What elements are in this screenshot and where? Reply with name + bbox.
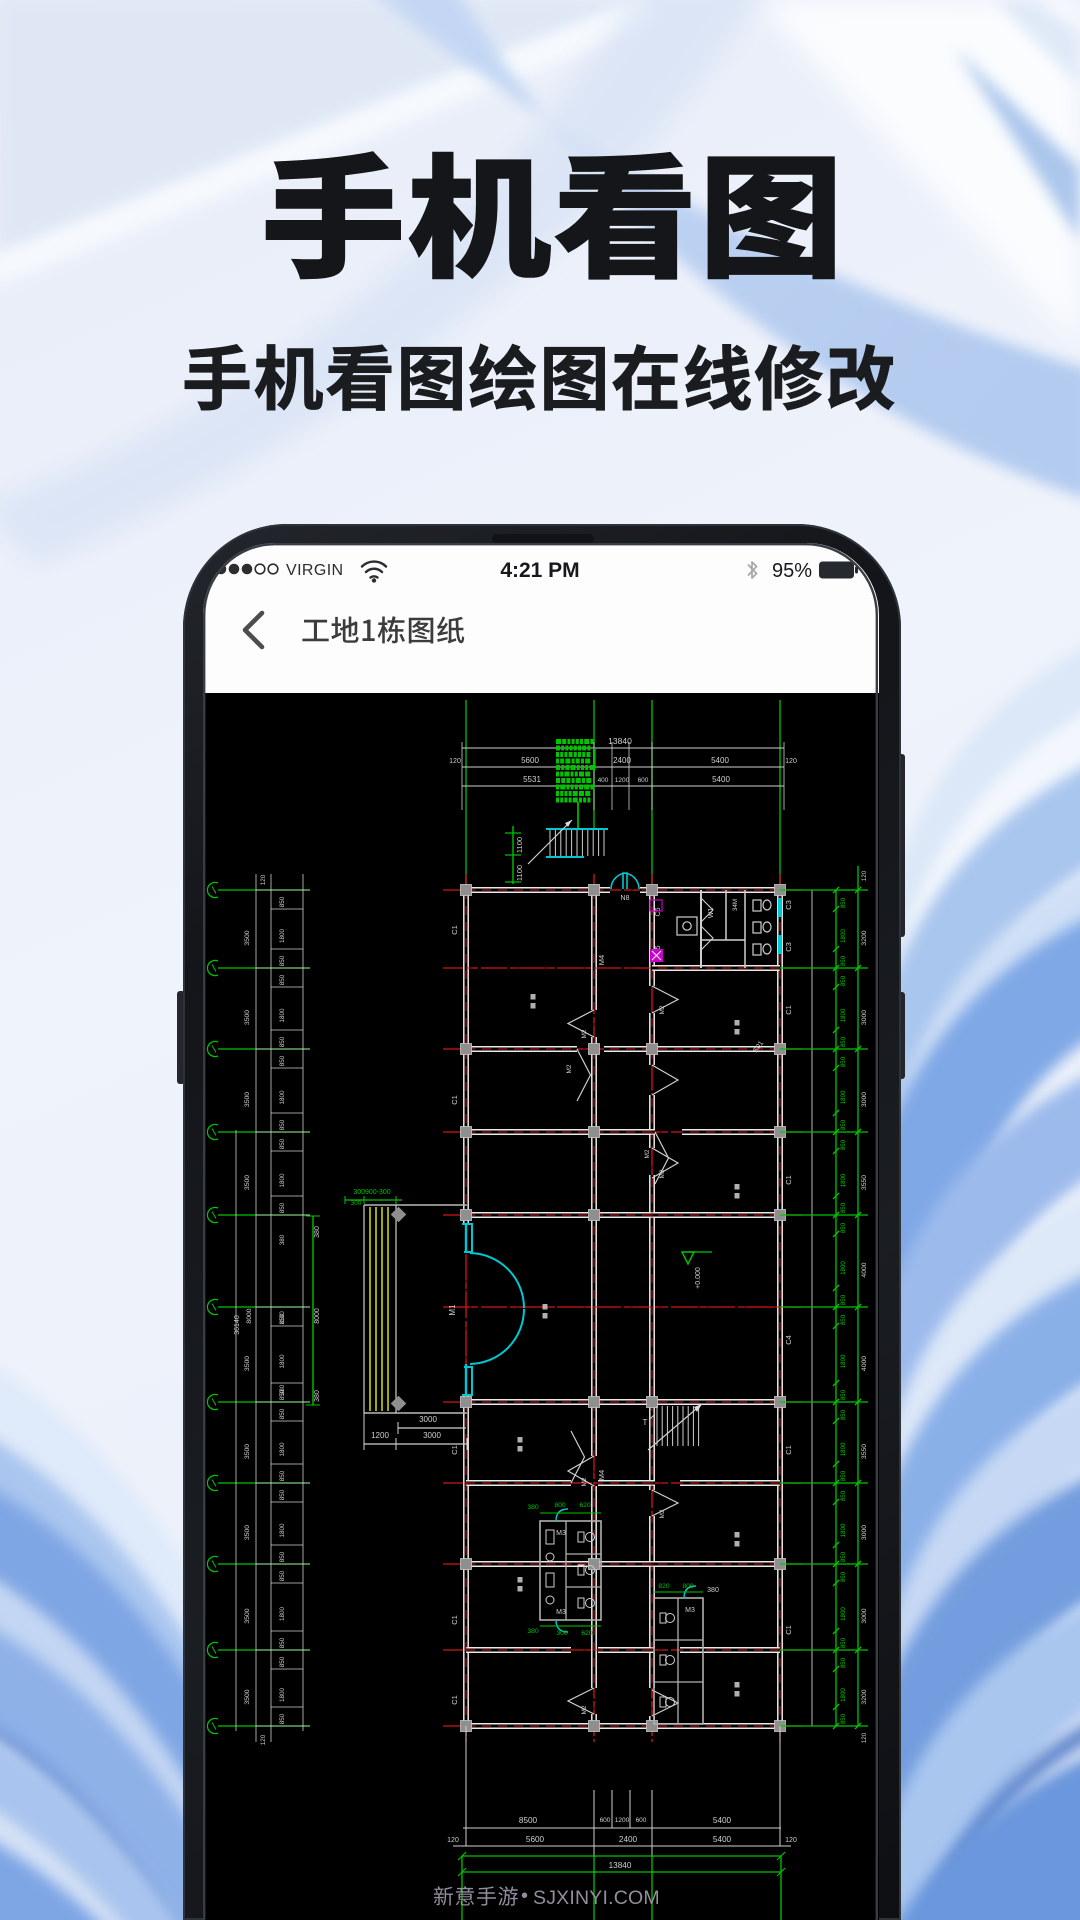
svg-text:M3: M3 xyxy=(685,1607,695,1614)
svg-text:3500: 3500 xyxy=(244,1444,251,1459)
svg-text:C1: C1 xyxy=(450,1695,459,1705)
svg-text:M2: M2 xyxy=(659,1005,666,1014)
svg-text:1800: 1800 xyxy=(279,1688,286,1703)
svg-text:34M: 34M xyxy=(732,899,739,911)
svg-text:850: 850 xyxy=(840,1294,847,1305)
svg-text:T: T xyxy=(643,1418,648,1427)
svg-text:M2: M2 xyxy=(581,1705,588,1714)
svg-text:850: 850 xyxy=(840,1571,847,1582)
svg-text:3500: 3500 xyxy=(244,1525,251,1540)
svg-text:380: 380 xyxy=(279,1384,286,1395)
svg-text:2400: 2400 xyxy=(613,756,631,765)
svg-text:2400: 2400 xyxy=(619,1835,638,1844)
svg-text:+0.000: +0.000 xyxy=(695,1267,702,1289)
svg-text:C3: C3 xyxy=(784,900,793,910)
svg-text:380: 380 xyxy=(279,1234,286,1245)
svg-text:850: 850 xyxy=(840,1222,847,1233)
svg-text:SJXINYI.COM: SJXINYI.COM xyxy=(533,1887,660,1909)
svg-text:1800: 1800 xyxy=(840,1354,847,1368)
svg-text:850: 850 xyxy=(279,1036,286,1047)
svg-text:380: 380 xyxy=(527,1628,539,1635)
svg-text:5531: 5531 xyxy=(523,775,541,784)
svg-text:850: 850 xyxy=(279,1656,286,1667)
svg-text:850: 850 xyxy=(279,1713,286,1724)
svg-text:850: 850 xyxy=(840,1713,847,1724)
svg-text:1800: 1800 xyxy=(279,1523,286,1538)
svg-text:N8: N8 xyxy=(621,895,630,902)
svg-text:M2: M2 xyxy=(581,1477,588,1486)
svg-text:1100: 1100 xyxy=(515,865,524,881)
svg-text:3500: 3500 xyxy=(244,1608,251,1623)
svg-text:800: 800 xyxy=(682,1583,694,1590)
svg-text:1800: 1800 xyxy=(840,929,847,943)
svg-text:C4: C4 xyxy=(784,1335,793,1345)
svg-text:850: 850 xyxy=(840,1551,847,1562)
svg-text:5400: 5400 xyxy=(713,1816,732,1825)
svg-text:C1: C1 xyxy=(450,1615,459,1625)
svg-text:850: 850 xyxy=(279,896,286,907)
svg-text:8500: 8500 xyxy=(519,1816,538,1825)
svg-text:850: 850 xyxy=(840,1139,847,1150)
svg-text:3000: 3000 xyxy=(419,1415,437,1424)
svg-text:M2: M2 xyxy=(566,1064,573,1073)
svg-text:850: 850 xyxy=(279,1551,286,1562)
svg-text:1800: 1800 xyxy=(840,1173,847,1187)
svg-text:3500: 3500 xyxy=(244,1175,251,1190)
svg-text:820: 820 xyxy=(658,1583,670,1590)
svg-text:3000: 3000 xyxy=(861,1608,868,1623)
svg-text:3550: 3550 xyxy=(861,1175,868,1190)
svg-text:850: 850 xyxy=(840,1490,847,1501)
svg-text:36140: 36140 xyxy=(234,1315,241,1335)
svg-text:3200: 3200 xyxy=(861,930,868,945)
svg-text:1100: 1100 xyxy=(515,837,524,853)
svg-text:850: 850 xyxy=(279,1408,286,1419)
svg-text:1800: 1800 xyxy=(840,1607,847,1621)
svg-text:1800: 1800 xyxy=(279,1354,286,1369)
svg-text:1800: 1800 xyxy=(279,929,286,944)
svg-text:850: 850 xyxy=(279,1489,286,1500)
svg-text:380: 380 xyxy=(527,1504,539,1511)
svg-text:850: 850 xyxy=(279,1570,286,1581)
svg-text:3000: 3000 xyxy=(861,1525,868,1540)
svg-text:120: 120 xyxy=(260,1734,267,1745)
svg-text:120: 120 xyxy=(785,758,797,765)
svg-text:850: 850 xyxy=(840,1657,847,1668)
svg-text:850: 850 xyxy=(840,1202,847,1213)
svg-text:850: 850 xyxy=(279,1119,286,1130)
svg-text:3500: 3500 xyxy=(244,1356,251,1371)
svg-text:620: 620 xyxy=(581,1630,593,1637)
svg-text:M4: M4 xyxy=(597,955,606,965)
svg-text:1800: 1800 xyxy=(279,1173,286,1188)
svg-text:1800: 1800 xyxy=(840,1688,847,1702)
svg-text:850: 850 xyxy=(840,1409,847,1420)
svg-text:600: 600 xyxy=(600,1817,611,1824)
svg-text:C1: C1 xyxy=(450,925,459,935)
svg-text:C1: C1 xyxy=(450,1445,459,1455)
svg-text:600: 600 xyxy=(636,1817,647,1824)
svg-text:120: 120 xyxy=(861,870,868,881)
svg-text:M2: M2 xyxy=(659,1509,666,1518)
svg-text:C1: C1 xyxy=(784,1625,793,1635)
svg-text:850: 850 xyxy=(840,1470,847,1481)
svg-text:•: • xyxy=(521,1885,528,1907)
svg-text:1800: 1800 xyxy=(840,1090,847,1104)
svg-text:620: 620 xyxy=(579,1502,591,1509)
svg-text:300: 300 xyxy=(556,1630,568,1637)
svg-text:4000: 4000 xyxy=(861,1356,868,1371)
svg-text:850: 850 xyxy=(840,975,847,986)
svg-text:1200: 1200 xyxy=(615,777,630,784)
svg-text:5600: 5600 xyxy=(521,756,539,765)
svg-text:120: 120 xyxy=(449,758,461,765)
svg-text:3500: 3500 xyxy=(244,1689,251,1704)
svg-text:C5: C5 xyxy=(655,907,662,916)
svg-text:1800: 1800 xyxy=(279,1008,286,1023)
svg-text:850: 850 xyxy=(840,1036,847,1047)
svg-text:850: 850 xyxy=(279,955,286,966)
svg-text:1800: 1800 xyxy=(279,1442,286,1457)
svg-text:C1: C1 xyxy=(784,1445,793,1455)
svg-text:850: 850 xyxy=(279,1055,286,1066)
svg-text:800: 800 xyxy=(554,1502,566,1509)
svg-text:13840: 13840 xyxy=(608,736,632,746)
svg-text:1800: 1800 xyxy=(840,1523,847,1537)
svg-text:C1: C1 xyxy=(450,1095,459,1105)
svg-text:1800: 1800 xyxy=(840,1008,847,1022)
svg-text:95%: 95% xyxy=(772,560,812,582)
svg-text:120: 120 xyxy=(447,1837,459,1844)
svg-text:VIRGIN: VIRGIN xyxy=(286,562,344,579)
svg-text:W1: W1 xyxy=(708,908,715,919)
svg-text:300: 300 xyxy=(351,1200,362,1207)
svg-text:5600: 5600 xyxy=(526,1835,545,1844)
svg-text:3500: 3500 xyxy=(244,1092,251,1107)
svg-text:850: 850 xyxy=(840,897,847,908)
svg-text:M2: M2 xyxy=(659,1169,666,1178)
svg-text:600: 600 xyxy=(638,777,649,784)
svg-text:M4: M4 xyxy=(597,1470,606,1480)
svg-text:850: 850 xyxy=(279,1138,286,1149)
svg-text:850: 850 xyxy=(840,1389,847,1400)
svg-text:M2: M2 xyxy=(644,1149,651,1158)
svg-text:850: 850 xyxy=(279,974,286,985)
svg-text:1800: 1800 xyxy=(840,1442,847,1456)
svg-text:3200: 3200 xyxy=(861,1689,868,1704)
svg-text:380: 380 xyxy=(707,1587,719,1594)
svg-text:4:21 PM: 4:21 PM xyxy=(500,559,579,582)
svg-text:M2: M2 xyxy=(581,1029,588,1038)
svg-text:1100: 1100 xyxy=(279,1311,286,1325)
svg-text:850: 850 xyxy=(840,1314,847,1325)
svg-text:850: 850 xyxy=(279,1202,286,1213)
svg-text:380: 380 xyxy=(314,1390,321,1402)
svg-text:120: 120 xyxy=(785,1837,797,1844)
svg-text:850: 850 xyxy=(840,955,847,966)
svg-text:3500: 3500 xyxy=(244,930,251,945)
svg-text:1200: 1200 xyxy=(371,1431,389,1440)
svg-text:300900-300: 300900-300 xyxy=(353,1189,390,1196)
svg-text:3000: 3000 xyxy=(423,1431,441,1440)
svg-text:8000: 8000 xyxy=(314,1308,321,1324)
svg-text:5400: 5400 xyxy=(712,775,730,784)
svg-text:5400: 5400 xyxy=(713,1835,732,1844)
svg-text:4000: 4000 xyxy=(861,1262,868,1277)
svg-text:8000: 8000 xyxy=(246,1308,253,1323)
svg-text:M1: M1 xyxy=(448,1304,457,1316)
svg-text:120: 120 xyxy=(861,1732,868,1743)
svg-text:850: 850 xyxy=(279,1637,286,1648)
svg-text:3000: 3000 xyxy=(861,1010,868,1025)
svg-text:C3: C3 xyxy=(784,942,793,952)
svg-text:C1: C1 xyxy=(784,1175,793,1185)
svg-text:380: 380 xyxy=(314,1226,321,1238)
svg-text:400: 400 xyxy=(598,777,609,784)
svg-text:M3: M3 xyxy=(556,1609,566,1616)
svg-text:850: 850 xyxy=(840,1056,847,1067)
svg-text:850: 850 xyxy=(840,1637,847,1648)
svg-text:3000: 3000 xyxy=(861,1092,868,1107)
svg-text:1200: 1200 xyxy=(615,1817,630,1824)
svg-text:C1: C1 xyxy=(784,1005,793,1015)
svg-text:M3: M3 xyxy=(556,1530,566,1537)
svg-text:5400: 5400 xyxy=(711,756,729,765)
svg-text:850: 850 xyxy=(279,1470,286,1481)
svg-text:1800: 1800 xyxy=(279,1607,286,1622)
svg-text:3500: 3500 xyxy=(244,1010,251,1025)
svg-text:120: 120 xyxy=(260,874,267,885)
svg-text:3550: 3550 xyxy=(861,1444,868,1459)
svg-text:1800: 1800 xyxy=(840,1261,847,1275)
svg-text:850: 850 xyxy=(840,1119,847,1130)
svg-text:1800: 1800 xyxy=(279,1090,286,1105)
